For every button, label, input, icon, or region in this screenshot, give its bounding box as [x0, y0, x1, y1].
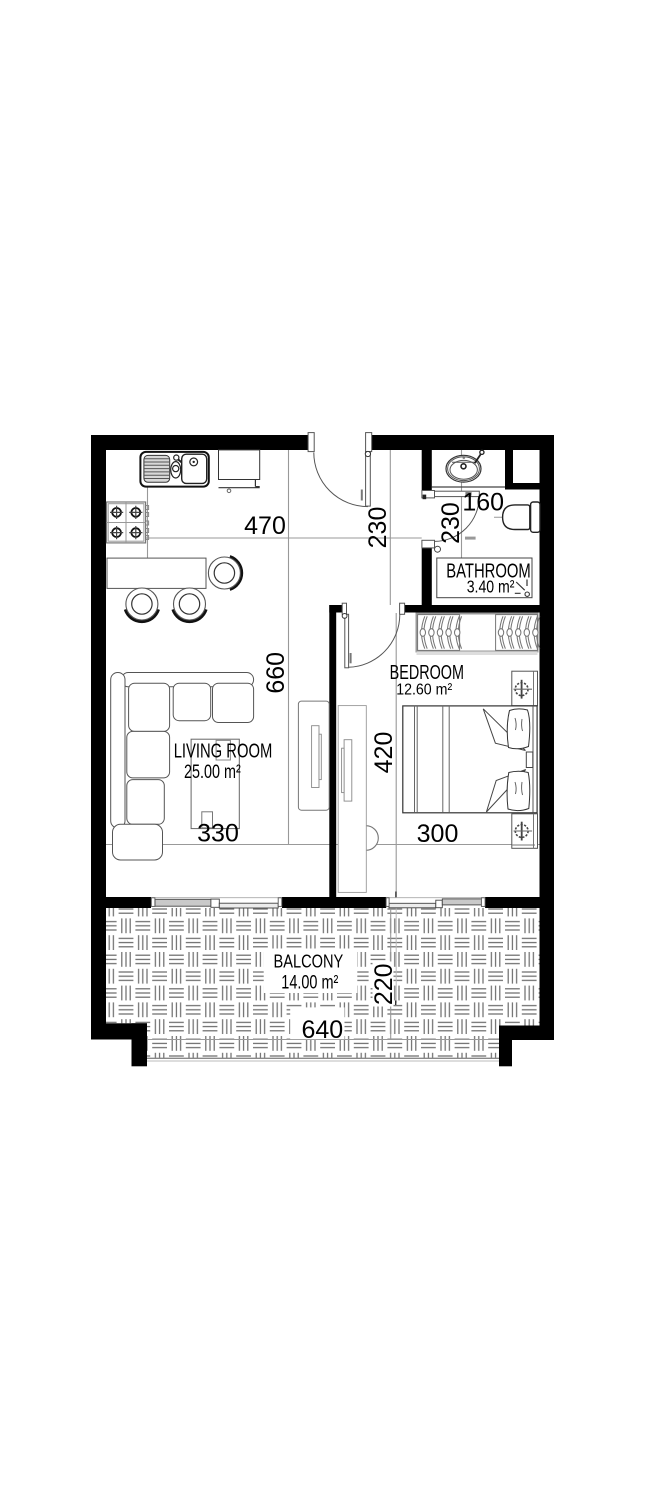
svg-text:160: 160 [462, 489, 504, 517]
svg-text:470: 470 [244, 512, 286, 540]
svg-text:640: 640 [301, 1016, 343, 1044]
svg-text:14.00 m²: 14.00 m² [281, 973, 338, 994]
svg-text:220: 220 [370, 963, 398, 1005]
svg-text:12.60 m²: 12.60 m² [396, 682, 453, 699]
svg-text:420: 420 [370, 732, 398, 774]
svg-text:330: 330 [197, 819, 239, 847]
svg-text:25.00 m²: 25.00 m² [184, 762, 241, 783]
svg-text:230: 230 [437, 502, 465, 544]
svg-text:BALCONY: BALCONY [274, 952, 344, 972]
svg-text:230: 230 [364, 507, 392, 549]
svg-text:660: 660 [262, 652, 290, 694]
svg-text:3.40 m²: 3.40 m² [467, 576, 515, 596]
svg-text:300: 300 [417, 820, 459, 848]
svg-text:LIVING ROOM: LIVING ROOM [174, 741, 273, 763]
